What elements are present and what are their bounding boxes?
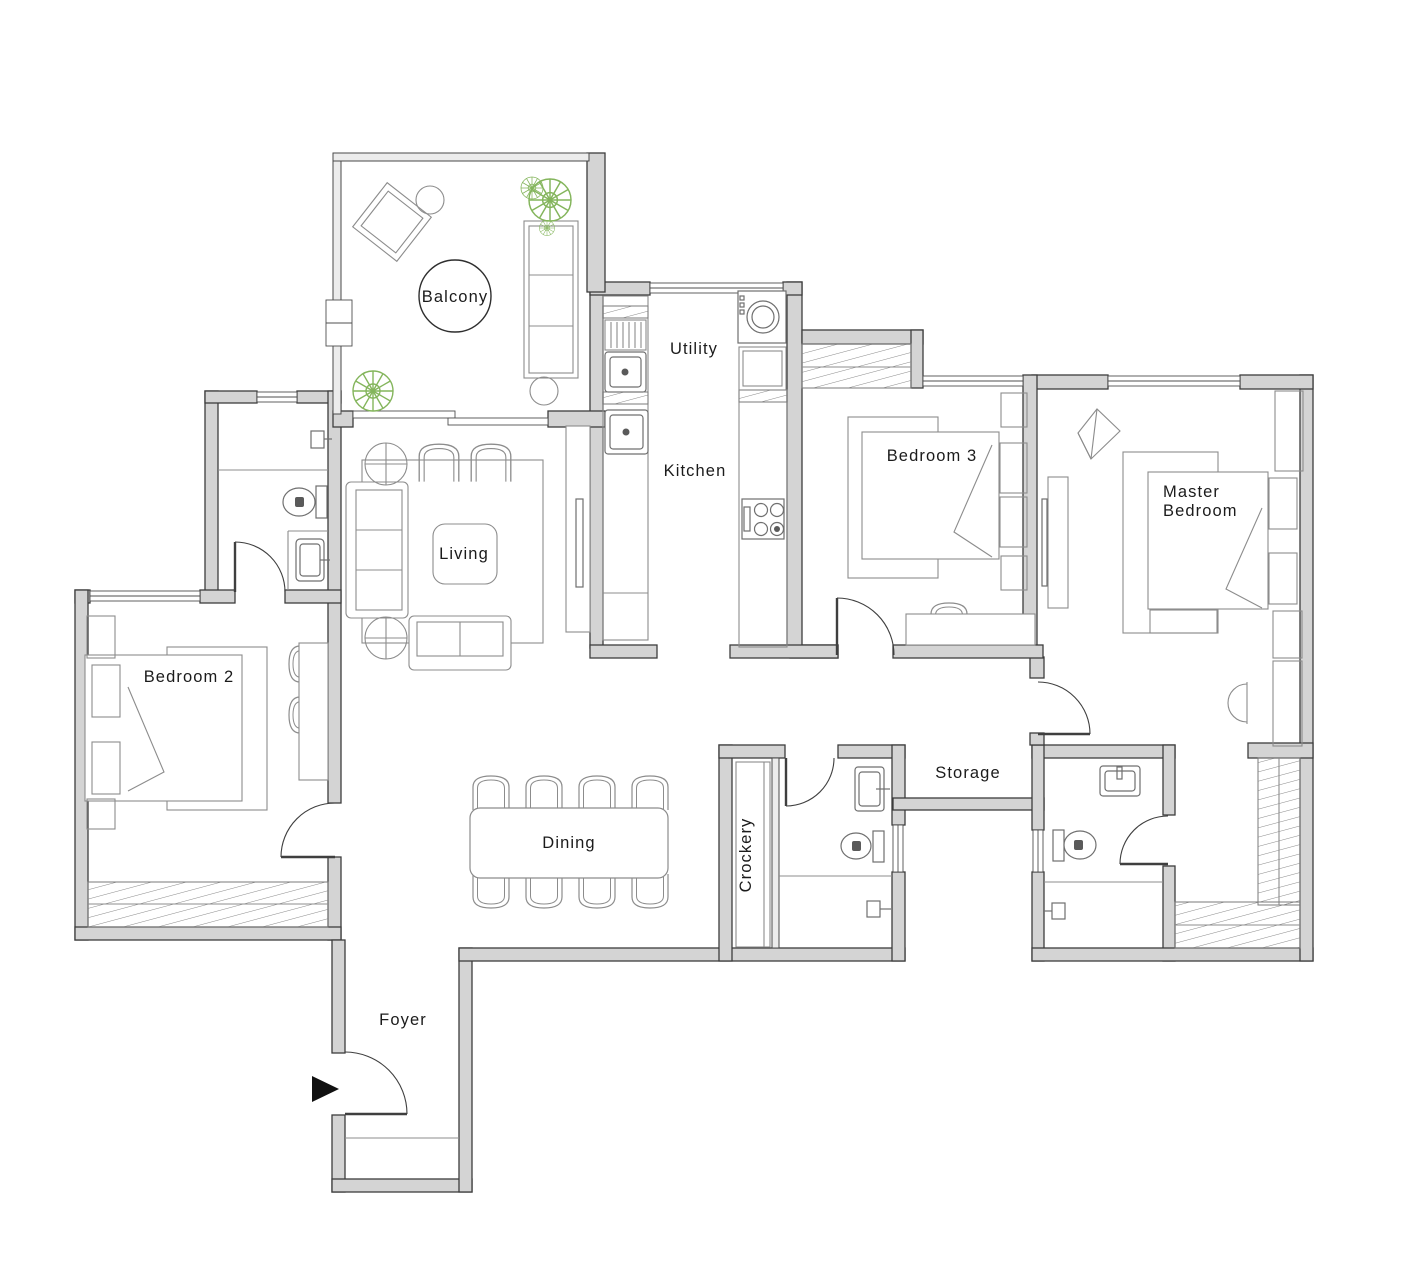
living-side-table xyxy=(365,443,407,485)
door-masterbath xyxy=(1120,816,1168,864)
dining-chair xyxy=(632,874,668,908)
dining-chair xyxy=(526,776,562,810)
stove-icon xyxy=(742,499,784,539)
plant-icon xyxy=(529,179,571,221)
dining-chair xyxy=(632,776,668,810)
crockery-divider-wall xyxy=(772,758,779,948)
wardrobe-bedroom2 xyxy=(88,882,328,927)
utility-drainboard xyxy=(605,320,646,350)
dining-chair xyxy=(473,776,509,810)
balcony-stool xyxy=(530,377,558,405)
bedroom2-side-table xyxy=(87,799,115,829)
shower-icon xyxy=(1044,903,1065,919)
walls xyxy=(75,153,1313,1192)
shower-icon xyxy=(867,901,891,917)
living-armchair xyxy=(471,444,511,481)
toilet-icon xyxy=(1053,830,1096,861)
living-tv-console xyxy=(566,426,590,632)
living-sofa-2seat xyxy=(409,616,511,670)
living-side-table xyxy=(365,617,407,659)
tv-icon xyxy=(576,499,583,587)
room-bedroom2 xyxy=(85,616,328,829)
balcony-side-stool xyxy=(416,186,444,214)
balcony-bench xyxy=(524,221,578,378)
label-balcony: Balcony xyxy=(422,288,488,306)
wardrobe-bedroom3 xyxy=(802,344,911,388)
master-chair xyxy=(1228,682,1247,724)
window-bedroom2 xyxy=(90,591,200,601)
master-tv-unit xyxy=(1042,477,1068,608)
room-bedroom3 xyxy=(848,393,1035,645)
window-masterbath xyxy=(1033,830,1043,872)
balcony-lounge-chair xyxy=(353,183,432,262)
room-master-bedroom xyxy=(1042,391,1303,746)
room-masterbath xyxy=(1044,766,1163,919)
dining-chair xyxy=(579,874,615,908)
kitchen-sink xyxy=(605,410,648,454)
floor-plan-canvas: Balcony Utility Kitchen Bedroom 3 Master… xyxy=(0,0,1412,1266)
sink-icon xyxy=(855,767,890,811)
dining-chair xyxy=(579,776,615,810)
plant-icon xyxy=(539,220,554,235)
master-wardrobe xyxy=(1273,661,1302,746)
plant-icon xyxy=(353,371,393,411)
door-bath2 xyxy=(786,758,834,806)
dining-chair xyxy=(473,874,509,908)
dining-chair xyxy=(526,874,562,908)
utility-sink xyxy=(605,352,646,392)
door-entry xyxy=(345,1052,407,1114)
window-bath2 xyxy=(893,825,903,872)
living-sofa-3seat xyxy=(346,482,408,618)
label-master-line1: Master xyxy=(1163,483,1220,501)
wardrobe-walkin-right xyxy=(1258,758,1300,905)
label-foyer: Foyer xyxy=(379,1011,427,1029)
sliding-door-balcony xyxy=(353,411,548,425)
label-crockery: Crockery xyxy=(737,818,755,893)
plant-icon xyxy=(521,177,543,199)
master-desk xyxy=(1150,610,1217,633)
toilet-icon xyxy=(283,486,327,518)
master-lamp xyxy=(1078,409,1120,459)
window-bedroom3 xyxy=(923,376,1023,386)
wardrobes xyxy=(88,344,1300,948)
bedroom3-desk xyxy=(906,614,1035,645)
living-armchair xyxy=(419,444,459,481)
bedroom2-desk xyxy=(299,643,328,780)
sink-icon xyxy=(296,539,330,581)
bedroom2-side-table xyxy=(87,616,115,658)
label-bedroom3: Bedroom 3 xyxy=(887,447,978,465)
washing-machine-icon xyxy=(738,291,786,343)
entry-arrow-icon xyxy=(312,1076,339,1102)
floor-plan-svg: Balcony Utility Kitchen Bedroom 3 Master… xyxy=(0,0,1412,1266)
wardrobe-walkin-bottom xyxy=(1175,902,1300,948)
master-wardrobe xyxy=(1275,391,1303,471)
label-dining: Dining xyxy=(542,834,595,852)
room-bath2 xyxy=(779,767,892,917)
label-living: Living xyxy=(439,545,489,563)
utility-shelf xyxy=(739,347,786,390)
door-master xyxy=(1038,682,1090,734)
label-storage: Storage xyxy=(935,764,1001,782)
door-bedroom3 xyxy=(837,598,894,655)
toilet-icon xyxy=(841,831,884,862)
label-master-line2: Bedroom xyxy=(1163,502,1238,520)
label-bedroom2: Bedroom 2 xyxy=(144,668,235,686)
label-kitchen: Kitchen xyxy=(664,462,727,480)
window-master xyxy=(1108,376,1240,386)
master-wardrobe xyxy=(1273,611,1302,658)
window-bath1 xyxy=(257,392,297,402)
tv-icon xyxy=(1042,499,1047,586)
sink-icon xyxy=(1100,766,1140,796)
door-bedroom2 xyxy=(281,803,335,857)
label-utility: Utility xyxy=(670,340,718,358)
door-bath1 xyxy=(235,542,285,592)
